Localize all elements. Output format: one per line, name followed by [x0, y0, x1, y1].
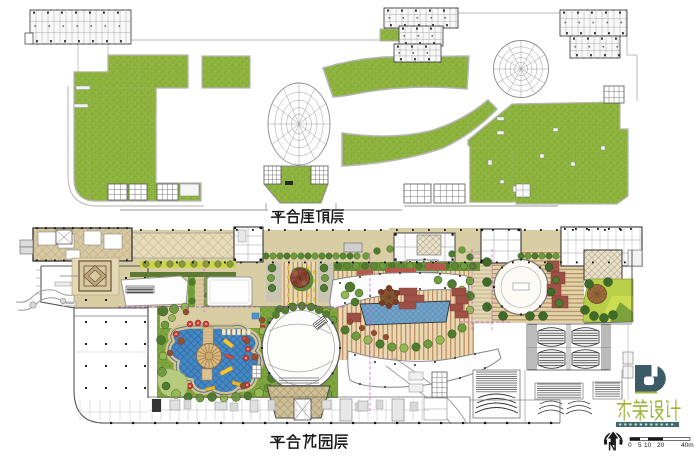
svg-text:N: N [608, 440, 617, 454]
svg-text:40m: 40m [681, 442, 694, 449]
svg-text:10: 10 [644, 442, 652, 449]
svg-text:0: 0 [628, 442, 632, 449]
svg-text:5: 5 [638, 442, 642, 449]
svg-text:20: 20 [657, 442, 665, 449]
